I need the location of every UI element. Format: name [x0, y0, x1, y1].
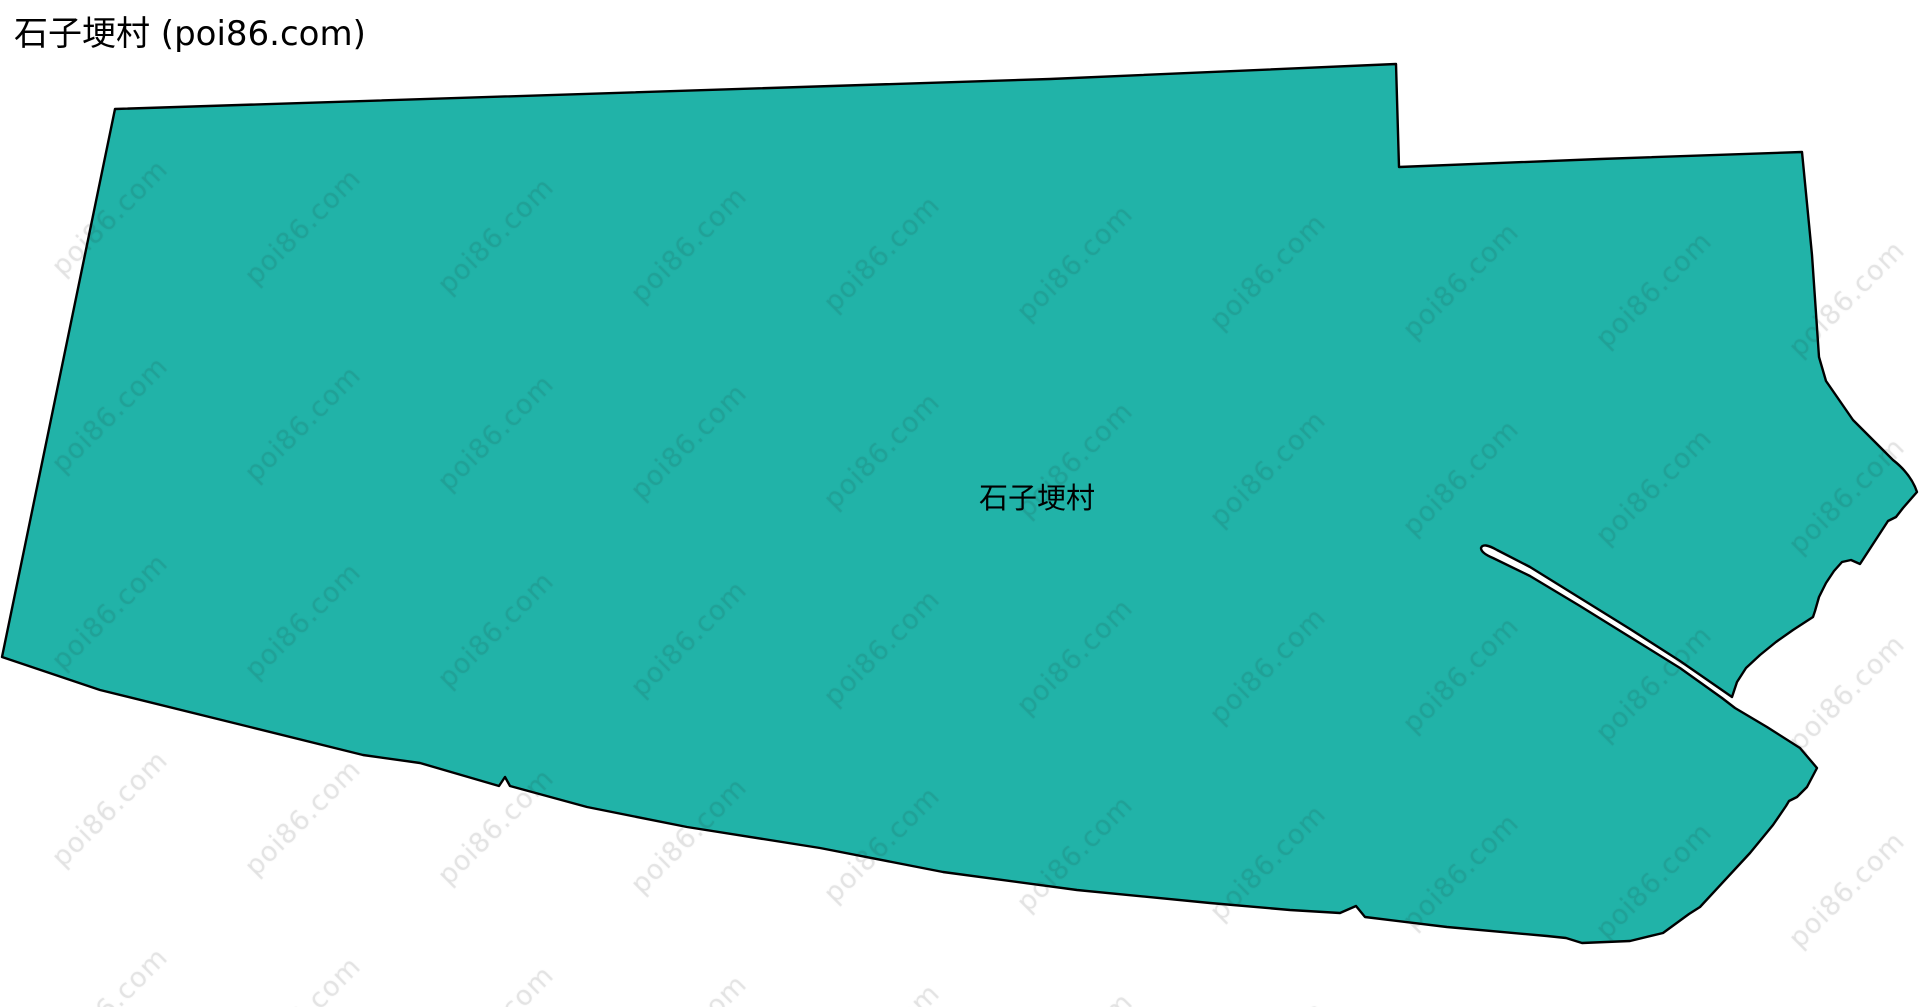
page-title: 石子埂村 (poi86.com)	[14, 6, 366, 55]
region-map	[0, 0, 1920, 1007]
region-boundary	[2, 64, 1917, 943]
map-canvas: poi86.compoi86.compoi86.compoi86.compoi8…	[0, 0, 1920, 1007]
region-label: 石子埂村	[979, 475, 1095, 517]
